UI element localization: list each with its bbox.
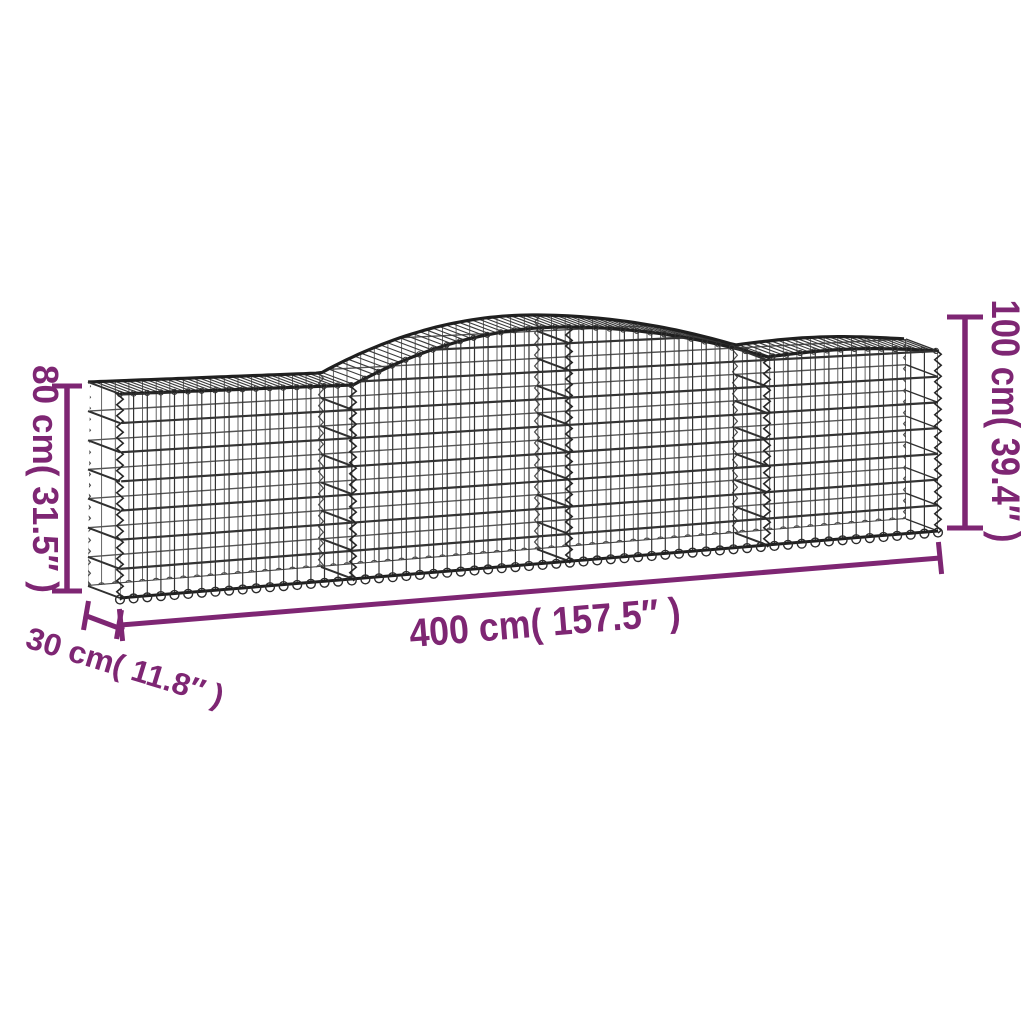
product-dimension-diagram: 80 cm( 31.5″ ) 100 cm( 39.4″ ) 400 cm( 1… [0, 0, 1024, 1024]
height-right-label: 100 cm( 39.4″ ) [983, 300, 1024, 543]
diagram-canvas: 80 cm( 31.5″ ) 100 cm( 39.4″ ) 400 cm( 1… [0, 0, 1024, 1024]
depth-dimension [84, 601, 125, 639]
gabion-basket-illustration [84, 288, 942, 604]
depth-label: 30 cm( 11.8″ ) [22, 620, 228, 713]
height-left-label: 80 cm( 31.5″ ) [25, 365, 66, 593]
height-right-dimension [947, 317, 983, 528]
